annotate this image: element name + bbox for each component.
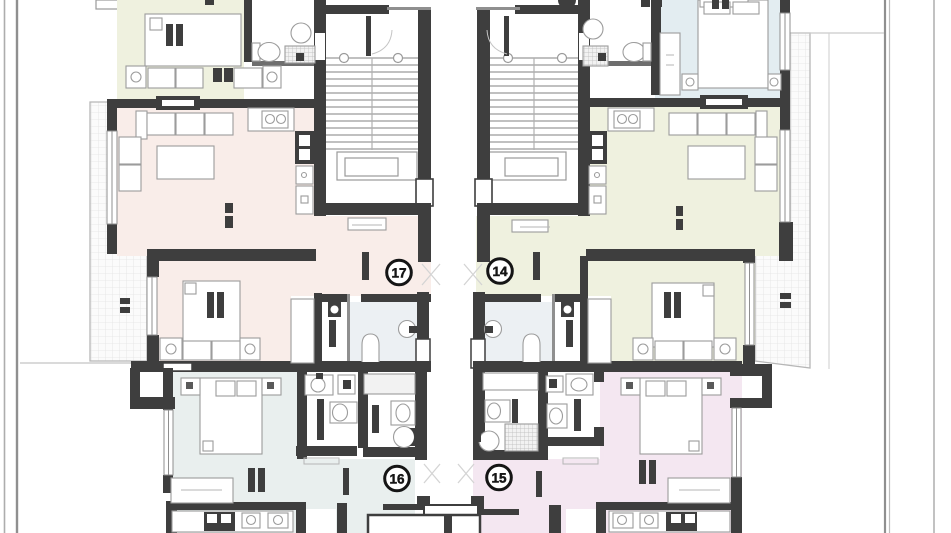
svg-text:15: 15 (491, 471, 507, 486)
svg-text:17: 17 (391, 266, 406, 281)
svg-text:16: 16 (389, 472, 405, 487)
svg-text:14: 14 (492, 264, 508, 279)
